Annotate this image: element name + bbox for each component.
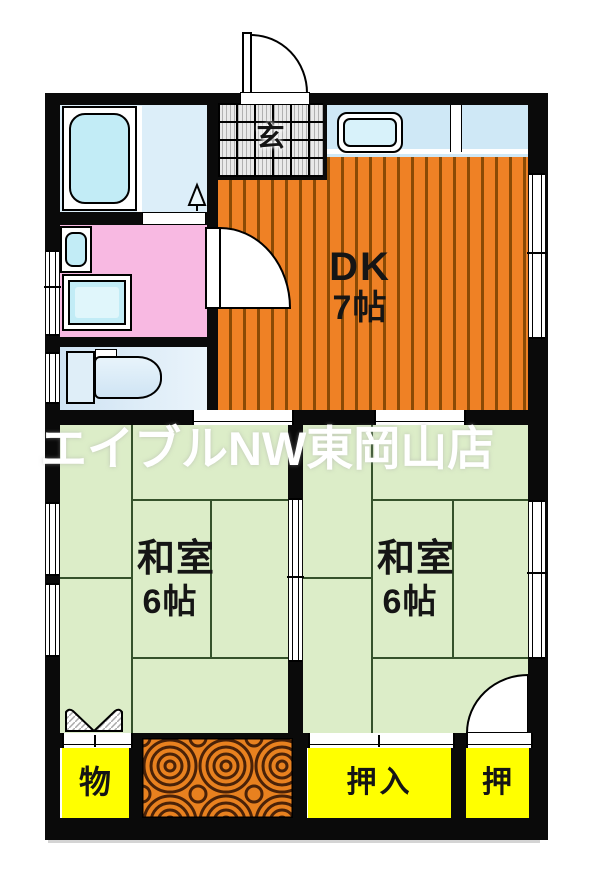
storage-box: 物 [62, 748, 129, 818]
window-tick [527, 572, 547, 574]
oshiire-track [308, 733, 455, 748]
washing-machine-icon [60, 226, 92, 273]
bifold-door-icon [63, 704, 125, 734]
room-right-size: 6帖 [345, 585, 475, 621]
storage-tick [94, 735, 96, 747]
dk-label: DK [300, 246, 420, 288]
tatami-seam [373, 657, 528, 659]
entrance-label: 玄 [215, 122, 327, 151]
bathtub-icon [62, 106, 137, 211]
tatami-seam [133, 499, 288, 501]
washbasin-icon [62, 274, 132, 331]
bath-door-threshold [142, 212, 206, 225]
window-room-left-1 [46, 502, 59, 576]
oshi-track [466, 733, 533, 748]
window-toilet [46, 352, 59, 404]
oshiire-label: 押入 [347, 767, 413, 799]
floor-plan: 玄 DK 7帖 和室 6帖 和室 6帖 [0, 0, 612, 878]
oshiire-box: 押入 [308, 748, 451, 818]
window-dk-right [529, 173, 545, 339]
drop-shadow [48, 840, 540, 843]
wall-closet-2 [293, 733, 307, 818]
oshi-box: 押 [466, 748, 529, 818]
fusuma-sliding-door [289, 498, 302, 662]
window-tick [527, 252, 547, 254]
room-right-label: 和室 [351, 540, 481, 580]
window-room-left-2 [46, 583, 59, 657]
window-room-right [529, 500, 545, 659]
wall-bottom [45, 818, 548, 840]
kitchen-sink-icon [337, 112, 403, 153]
room-left-size: 6帖 [105, 585, 235, 621]
bath-divider [137, 106, 142, 212]
door-swing-icon [204, 226, 292, 310]
tatami-seam [373, 499, 528, 501]
oshiire-tick [378, 735, 380, 747]
door-swing-icon [463, 671, 528, 733]
watermark-text: エイブルNW東岡山店 [40, 410, 494, 479]
storage-label: 物 [79, 766, 112, 800]
window-washroom [46, 250, 59, 336]
window-tick [44, 286, 61, 288]
tatami-seam [133, 657, 288, 659]
oshi-label: 押 [482, 767, 513, 799]
counter-divider [450, 105, 462, 152]
wood-floor [142, 738, 293, 818]
wall-washroom-bottom [60, 337, 207, 347]
room-left-label: 和室 [111, 540, 241, 580]
dk-size-label: 7帖 [300, 291, 420, 327]
fusuma-tick [287, 576, 304, 578]
storage-track [62, 733, 133, 748]
entrance-door-icon [240, 28, 312, 96]
entrance-threshold [240, 92, 310, 105]
